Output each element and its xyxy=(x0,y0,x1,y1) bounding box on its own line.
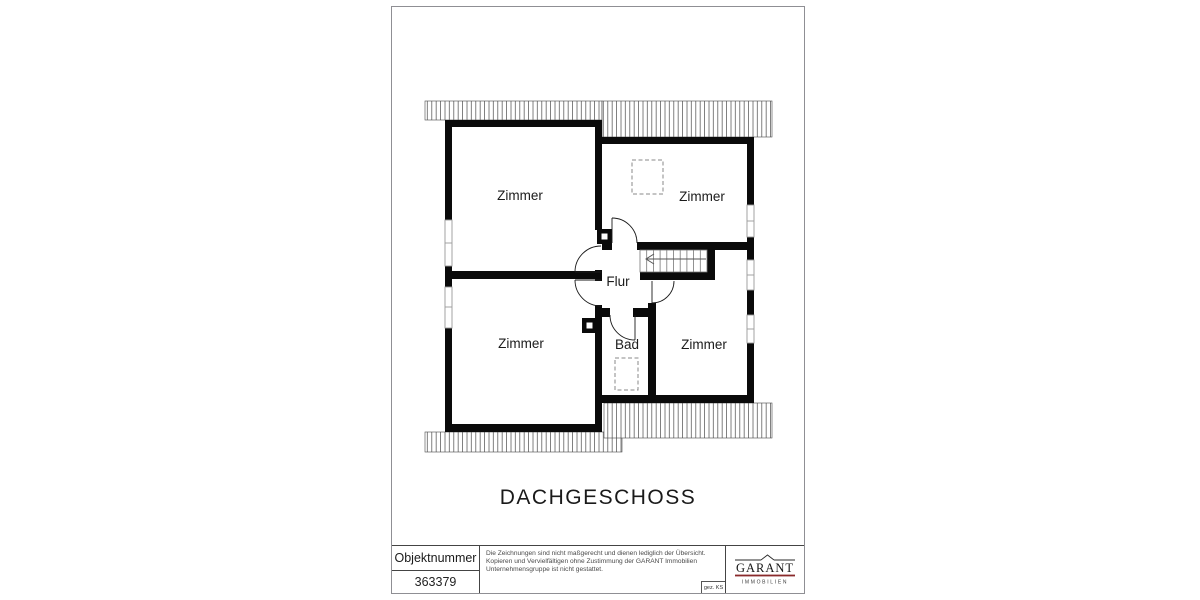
chimney-top xyxy=(597,229,612,244)
garant-logo: GARANT IMMOBILIEN xyxy=(733,554,797,586)
floor-title: DACHGESCHOSS xyxy=(392,486,804,510)
object-number-label: Objektnummer xyxy=(392,546,479,571)
disclaimer-line-1: Die Zeichnungen sind nicht maßgerecht un… xyxy=(486,550,719,558)
door-zimmer-top-left xyxy=(575,246,601,272)
window-left-lower xyxy=(445,287,452,328)
room-label-zimmer-bottom-right: Zimmer xyxy=(681,337,727,352)
disclaimer-cell: Die Zeichnungen sind nicht maßgerecht un… xyxy=(480,546,726,593)
object-number-cell: Objektnummer 363379 xyxy=(392,546,480,593)
hatch-top-left xyxy=(425,101,602,120)
staircase xyxy=(640,250,707,272)
room-label-zimmer-top-left: Zimmer xyxy=(497,188,543,203)
title-block: Objektnummer 363379 Die Zeichnungen sind… xyxy=(392,545,804,593)
door-zimmer-bottom-left xyxy=(575,280,601,306)
floor-plan-svg: Zimmer Zimmer Flur Zimmer Bad Zimmer xyxy=(392,7,804,544)
page-canvas: Zimmer Zimmer Flur Zimmer Bad Zimmer DAC… xyxy=(0,0,1200,600)
disclaimer-line-2: Kopieren und Vervielfältigen ohne Zustim… xyxy=(486,558,719,566)
hatch-top-right xyxy=(602,101,772,137)
object-number-value: 363379 xyxy=(392,571,479,593)
disclaimer-line-3: Unternehmensgruppe ist nicht gestattet. xyxy=(486,566,719,574)
logo-brand-text: GARANT xyxy=(736,561,794,575)
logo-subtitle-text: IMMOBILIEN xyxy=(742,579,788,585)
logo-roof-line xyxy=(735,555,795,560)
room-label-zimmer-bottom-left: Zimmer xyxy=(498,336,544,351)
hatch-bottom-right xyxy=(604,403,772,438)
signature-box: gez. KS xyxy=(701,581,725,593)
door-zimmer-bottom-right xyxy=(652,281,674,303)
room-label-bad: Bad xyxy=(615,337,639,352)
door-zimmer-top-right xyxy=(612,218,637,243)
hatch-bottom-left xyxy=(425,432,622,452)
flue-dashed-outline xyxy=(632,160,663,194)
shower-dashed-outline xyxy=(615,358,638,390)
room-label-zimmer-top-right: Zimmer xyxy=(679,189,725,204)
drawing-frame: Zimmer Zimmer Flur Zimmer Bad Zimmer DAC… xyxy=(391,6,805,594)
logo-cell: GARANT IMMOBILIEN xyxy=(726,546,804,593)
chimney-bottom xyxy=(582,318,597,333)
logo-underline xyxy=(735,574,795,576)
walls xyxy=(445,120,754,432)
room-label-flur: Flur xyxy=(606,274,630,289)
